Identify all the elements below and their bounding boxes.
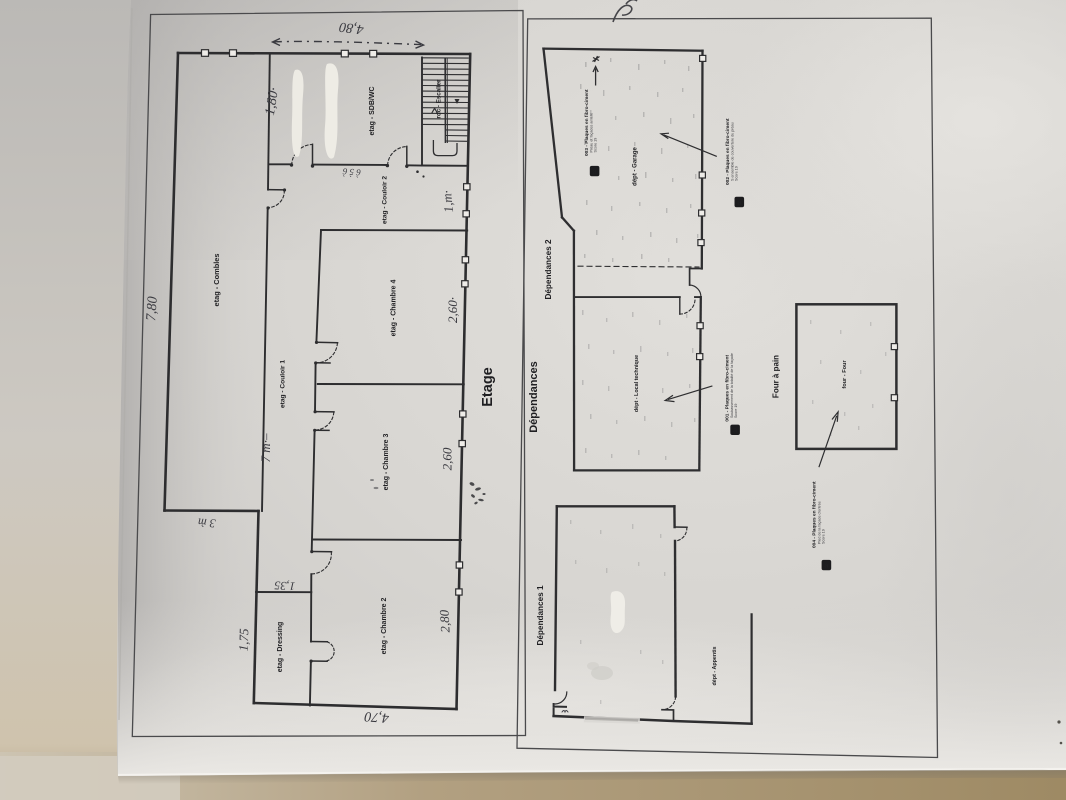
svg-text:etag - Dressing: etag - Dressing — [277, 622, 284, 673]
svg-text:etag - Chambre 3: etag - Chambre 3 — [383, 433, 390, 490]
svg-text:dépt - Appentis: dépt - Appentis — [712, 646, 718, 685]
svg-text:2,60: 2,60 — [440, 447, 455, 470]
svg-text:Dépendances 1: Dépendances 1 — [536, 585, 545, 646]
svg-text:7,80: 7,80 — [144, 296, 161, 321]
svg-text:3 m̀: 3 m̀ — [197, 515, 217, 530]
svg-text:four - Four: four - Four — [842, 360, 848, 389]
svg-text:Dépendances 2: Dépendances 2 — [544, 239, 553, 300]
svg-text:etag - Chambre 4: etag - Chambre 4 — [391, 279, 398, 336]
svg-text:Etage: Etage — [480, 367, 496, 407]
svg-text:etag - Chambre 2: etag - Chambre 2 — [381, 597, 388, 654]
svg-text:Four à pain: Four à pain — [772, 355, 781, 398]
svg-text:4,70: 4,70 — [364, 708, 389, 725]
svg-text:a: a — [592, 167, 597, 176]
svg-text:rdc - Escalier: rdc - Escalier — [436, 79, 443, 118]
svg-text:Score 19: Score 19 — [594, 138, 598, 153]
svg-text:Score 19: Score 19 — [735, 166, 739, 181]
svg-text:Score 19: Score 19 — [734, 404, 738, 418]
svg-text:1,75: 1,75 — [236, 628, 252, 652]
svg-text:dépt - Local technique: dépt - Local technique — [634, 355, 640, 412]
svg-text:a: a — [737, 198, 742, 207]
svg-text:a: a — [824, 561, 829, 570]
svg-text:Dépendances: Dépendances — [528, 361, 540, 433]
svg-text:a: a — [733, 426, 738, 435]
svg-text:dépt - Garage: dépt - Garage — [633, 147, 639, 186]
svg-text:etag - Couloir 1: etag - Couloir 1 — [280, 360, 287, 408]
svg-text:1,m·: 1,m· — [439, 190, 456, 214]
svg-text:etag - SDB/WC: etag - SDB/WC — [369, 87, 376, 136]
svg-text:1,35: 1,35 — [274, 578, 296, 593]
svg-text:6̀ 5̀ 6̀: 6̀ 5̀ 6̀ — [342, 166, 361, 177]
svg-text:2,60·: 2,60· — [445, 297, 460, 323]
svg-text:7 m·–: 7 m·– — [258, 433, 273, 462]
svg-text:2,80: 2,80 — [436, 609, 452, 633]
svg-text:Score 19: Score 19 — [822, 529, 826, 544]
svg-text:etag - Combles: etag - Combles — [212, 254, 221, 307]
svg-text:etag - Couloir 2: etag - Couloir 2 — [382, 176, 389, 224]
svg-text:4,80: 4,80 — [339, 19, 365, 37]
